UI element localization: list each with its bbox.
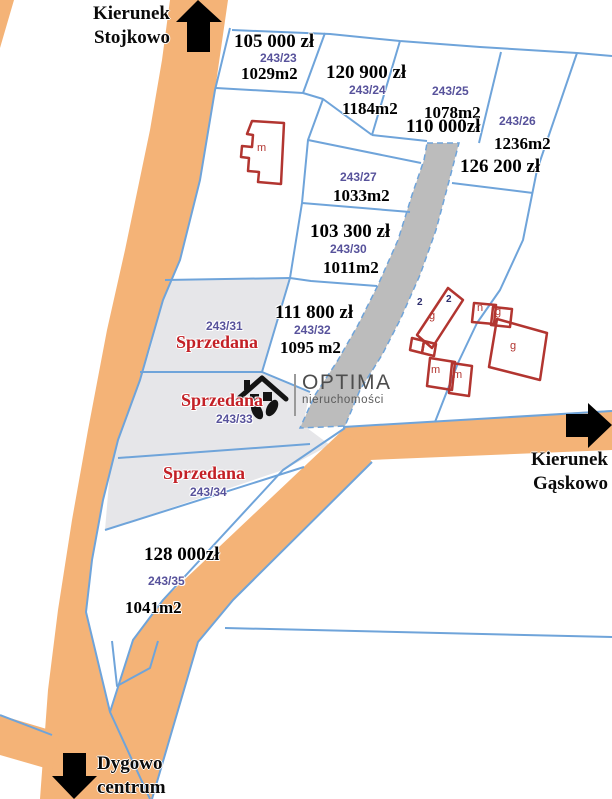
plot-243-31-number: 243/31 bbox=[206, 319, 243, 333]
plot-243-33-number: 243/33 bbox=[216, 412, 253, 426]
plot-243-25-price: 110 000zł bbox=[406, 116, 480, 138]
logo-divider bbox=[294, 374, 296, 416]
building-letter-house2-m: m bbox=[431, 364, 440, 376]
address-number-2: 2 bbox=[446, 294, 452, 305]
direction-gaskowo-line1: Kierunek bbox=[514, 448, 608, 472]
plot-243-25-number: 243/25 bbox=[432, 84, 469, 98]
plot-243-35-price: 128 000zł bbox=[144, 544, 219, 566]
plot-243-24-area: 1184m2 bbox=[342, 99, 398, 119]
direction-label-gaskowo: Kierunek Gąskowo bbox=[514, 448, 608, 496]
plot-243-27-number: 243/27 bbox=[340, 170, 377, 184]
plot-243-30-number: 243/30 bbox=[330, 242, 367, 256]
direction-label-stojkowo: Kierunek Stojkowo bbox=[28, 2, 170, 50]
building-letter-outbuilding-n: n bbox=[477, 302, 483, 314]
plot-243-24-price: 120 900 zł bbox=[326, 62, 406, 84]
logo-subtitle-text: nieruchomości bbox=[302, 394, 392, 406]
address-number-1: 2 bbox=[417, 297, 423, 308]
plot-243-26-area: 1236m2 bbox=[494, 134, 551, 154]
plot-243-32-number: 243/32 bbox=[294, 323, 331, 337]
plot-243-34-sold-label: Sprzedana bbox=[163, 463, 245, 484]
plot-243-26-number: 243/26 bbox=[499, 114, 536, 128]
plot-243-26-price: 126 200 zł bbox=[460, 156, 540, 178]
logo-brand-text: OPTIMA bbox=[302, 372, 392, 394]
plot-243-31-sold-label: Sprzedana bbox=[176, 332, 258, 353]
building-letter-garage1-g: g bbox=[429, 310, 435, 322]
plot-243-30-area: 1011m2 bbox=[323, 258, 379, 278]
plot-243-32-area: 1095 m2 bbox=[280, 338, 341, 358]
plot-243-27-area: 1033m2 bbox=[333, 186, 390, 206]
road-corner-sliver bbox=[0, 0, 14, 48]
plot-243-30-price: 103 300 zł bbox=[310, 221, 390, 243]
direction-stojkowo-line2: Stojkowo bbox=[28, 26, 170, 50]
plot-map: Kierunek Stojkowo Kierunek Gąskowo Dygow… bbox=[0, 0, 612, 799]
plot-243-23-price: 105 000 zł bbox=[234, 31, 314, 53]
building-letter-garage2-g: g bbox=[495, 306, 501, 318]
direction-stojkowo-line1: Kierunek bbox=[28, 2, 170, 26]
plot-243-23-area: 1029m2 bbox=[241, 64, 298, 84]
plot-243-23-number: 243/23 bbox=[260, 51, 297, 65]
building-letter-house-m: m bbox=[257, 142, 266, 154]
plot-243-35-area: 1041m2 bbox=[125, 598, 182, 618]
direction-gaskowo-line2: Gąskowo bbox=[514, 472, 608, 496]
plot-243-24-number: 243/24 bbox=[349, 83, 386, 97]
building-letter-house3-m: m bbox=[453, 369, 462, 381]
plot-243-35-number: 243/35 bbox=[148, 574, 185, 588]
building-letter-garage3-g: g bbox=[510, 340, 516, 352]
direction-dygowo-line2: centrum bbox=[97, 776, 187, 799]
plot-243-32-price: 111 800 zł bbox=[275, 302, 353, 324]
plot-243-33-sold-label: Sprzedana bbox=[181, 390, 263, 411]
plot-243-34-number: 243/34 bbox=[190, 485, 227, 499]
direction-dygowo-line1: Dygowo bbox=[97, 752, 187, 776]
direction-label-dygowo: Dygowo centrum bbox=[97, 752, 187, 799]
